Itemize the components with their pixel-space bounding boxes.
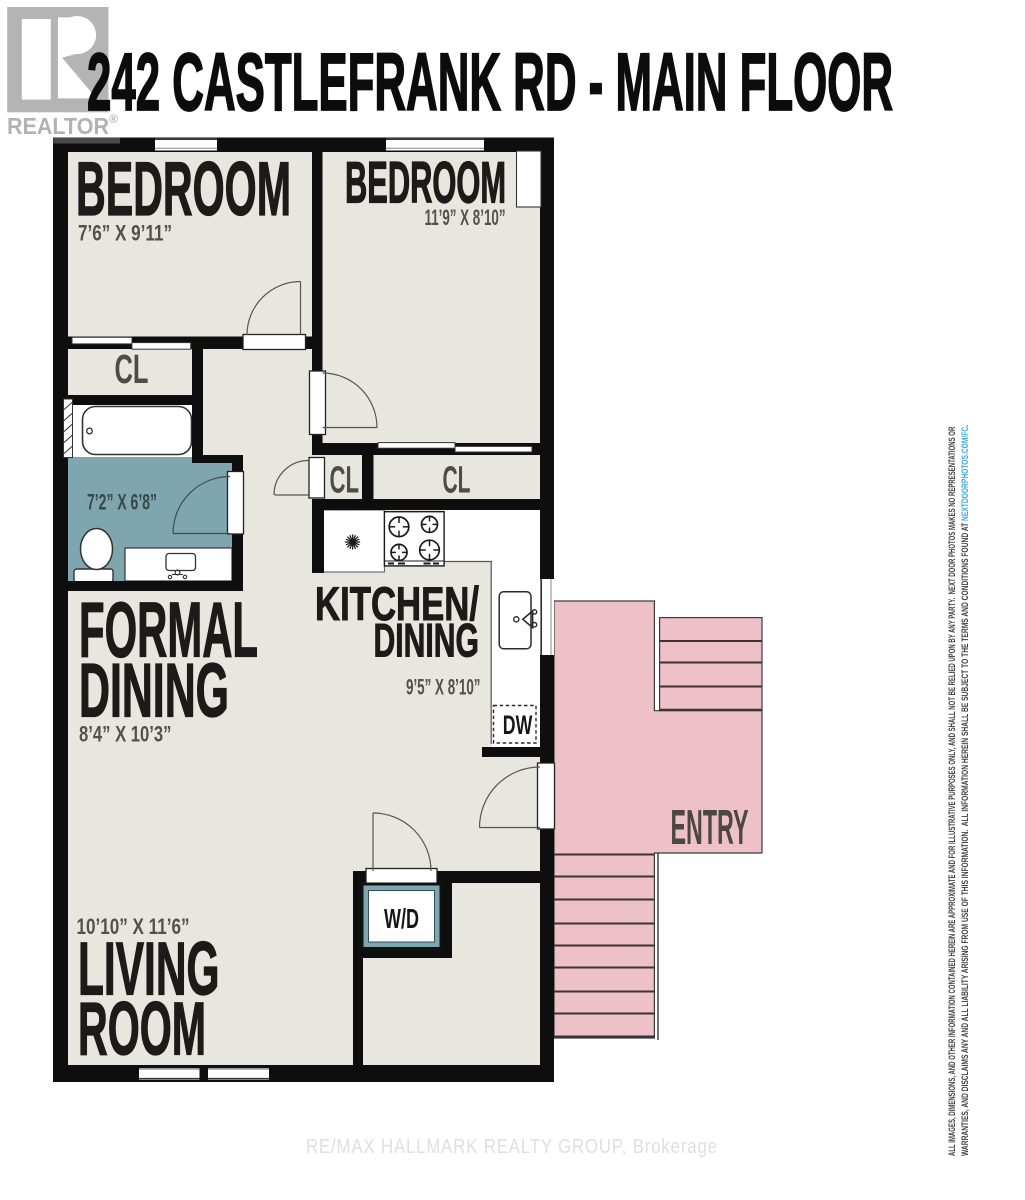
svg-text:CL: CL	[115, 346, 149, 392]
svg-text:DW: DW	[503, 710, 533, 740]
svg-text:8’4” X 10’3”: 8’4” X 10’3”	[79, 722, 172, 747]
svg-text:7’6” X 9’11”: 7’6” X 9’11”	[78, 221, 172, 246]
svg-text:7’2” X 6’8”: 7’2” X 6’8”	[87, 490, 157, 515]
svg-text:ROOM: ROOM	[78, 987, 206, 1071]
svg-text:BEDROOM: BEDROOM	[76, 147, 291, 232]
svg-text:242 CASTLEFRANK RD - MAIN FLOO: 242 CASTLEFRANK RD - MAIN FLOOR	[87, 37, 893, 128]
svg-text:W/D: W/D	[384, 903, 419, 934]
svg-text:11’9” X 8’10”: 11’9” X 8’10”	[425, 205, 506, 230]
svg-text:CL: CL	[443, 460, 471, 502]
svg-text:DINING: DINING	[374, 614, 480, 667]
svg-text:9’5” X 8’10”: 9’5” X 8’10”	[406, 675, 481, 700]
svg-text:CL: CL	[330, 460, 360, 502]
svg-text:ENTRY: ENTRY	[671, 800, 749, 855]
